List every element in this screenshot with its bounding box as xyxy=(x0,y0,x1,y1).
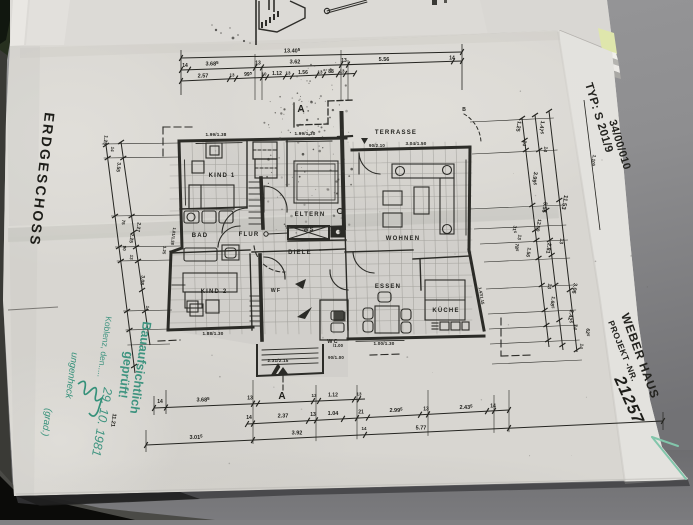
svg-text:3.62: 3.62 xyxy=(290,60,301,66)
svg-text:14: 14 xyxy=(490,404,496,410)
svg-text:13: 13 xyxy=(229,73,235,78)
svg-text:2.27: 2.27 xyxy=(134,222,141,233)
svg-text:10: 10 xyxy=(261,72,267,77)
svg-text:1.25: 1.25 xyxy=(101,135,108,146)
svg-text:WF: WF xyxy=(271,288,281,294)
svg-text:2.31/2.15: 2.31/2.15 xyxy=(268,358,289,363)
svg-text:13: 13 xyxy=(317,70,323,75)
svg-text:14: 14 xyxy=(449,56,455,62)
svg-text:90/2.10: 90/2.10 xyxy=(369,143,385,148)
svg-text:13: 13 xyxy=(341,58,347,64)
svg-text:A: A xyxy=(278,391,285,402)
svg-text:13: 13 xyxy=(310,412,316,418)
svg-text:1.56: 1.56 xyxy=(298,70,308,76)
svg-text:KIND 1: KIND 1 xyxy=(209,173,236,179)
svg-text:5.56: 5.56 xyxy=(379,57,390,63)
svg-text:90/1.00: 90/1.00 xyxy=(328,355,344,360)
svg-text:3.55: 3.55 xyxy=(114,162,121,173)
svg-text:3.04/1.50: 3.04/1.50 xyxy=(406,141,427,146)
svg-text:14: 14 xyxy=(157,399,163,405)
svg-text:13: 13 xyxy=(247,396,253,402)
svg-text:ESSEN: ESSEN xyxy=(375,284,401,290)
svg-text:14: 14 xyxy=(182,63,188,69)
svg-text:5.77: 5.77 xyxy=(416,426,427,432)
svg-text:2.25: 2.25 xyxy=(127,233,134,244)
svg-text:13: 13 xyxy=(285,71,291,76)
svg-text:BAD: BAD xyxy=(192,233,209,239)
svg-text:B: B xyxy=(462,107,466,113)
svg-text:1.88/1.30: 1.88/1.30 xyxy=(203,331,224,336)
svg-text:1.00/1.30: 1.00/1.30 xyxy=(374,341,395,346)
svg-text:2.57: 2.57 xyxy=(198,74,209,80)
svg-text:2.37: 2.37 xyxy=(278,414,289,420)
svg-text:1.25: 1.25 xyxy=(161,246,167,255)
svg-text:3.08: 3.08 xyxy=(138,275,145,286)
svg-text:1.99/1.38: 1.99/1.38 xyxy=(206,132,227,137)
svg-text:ELTERN: ELTERN xyxy=(295,212,326,218)
svg-text:13: 13 xyxy=(339,69,345,74)
svg-text:/1.00: /1.00 xyxy=(333,343,344,348)
svg-text:1.04: 1.04 xyxy=(328,411,340,417)
svg-text:DIELE: DIELE xyxy=(288,250,312,256)
svg-text:13: 13 xyxy=(356,392,362,397)
svg-text:KÜCHE: KÜCHE xyxy=(432,307,459,314)
svg-text:1.12: 1.12 xyxy=(328,393,338,399)
svg-text:KIND 2: KIND 2 xyxy=(201,289,228,295)
svg-text:FLUR: FLUR xyxy=(239,232,260,238)
svg-text:WS: WS xyxy=(303,227,314,233)
svg-text:21: 21 xyxy=(358,410,364,416)
svg-text:14: 14 xyxy=(361,426,367,431)
svg-text:3.92: 3.92 xyxy=(292,431,303,437)
svg-text:TERRASSE: TERRASSE xyxy=(375,130,417,136)
svg-text:WOHNEN: WOHNEN xyxy=(386,236,421,242)
svg-text:1.12: 1.12 xyxy=(272,71,282,77)
svg-text:14: 14 xyxy=(246,415,252,421)
